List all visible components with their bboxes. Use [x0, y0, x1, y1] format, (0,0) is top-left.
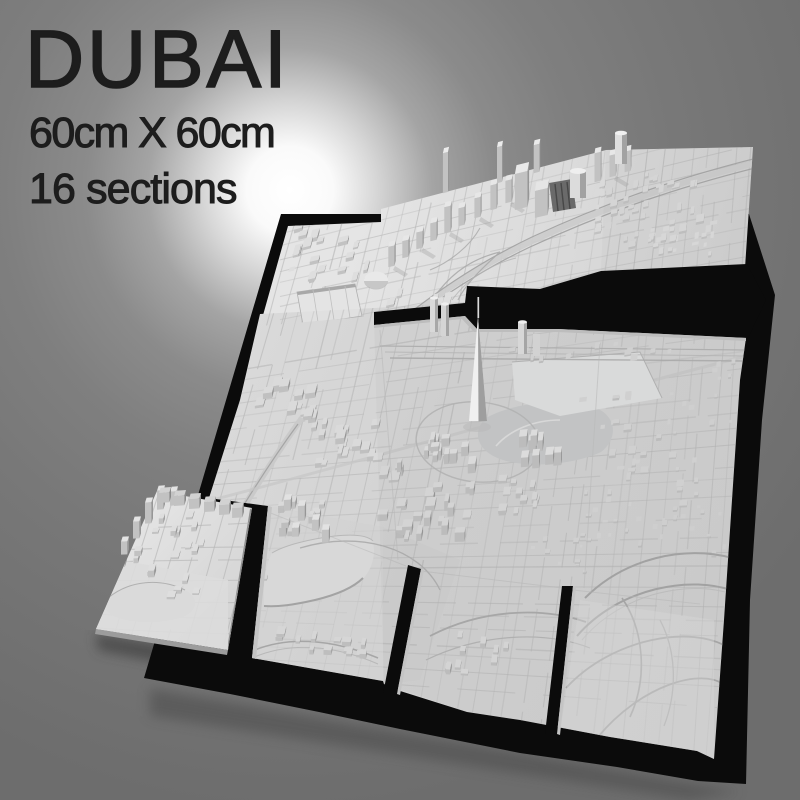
svg-text:DUBAI: DUBAI	[25, 14, 290, 105]
svg-text:60cm X 60cm: 60cm X 60cm	[29, 109, 274, 157]
svg-text:16 sections: 16 sections	[29, 165, 237, 213]
